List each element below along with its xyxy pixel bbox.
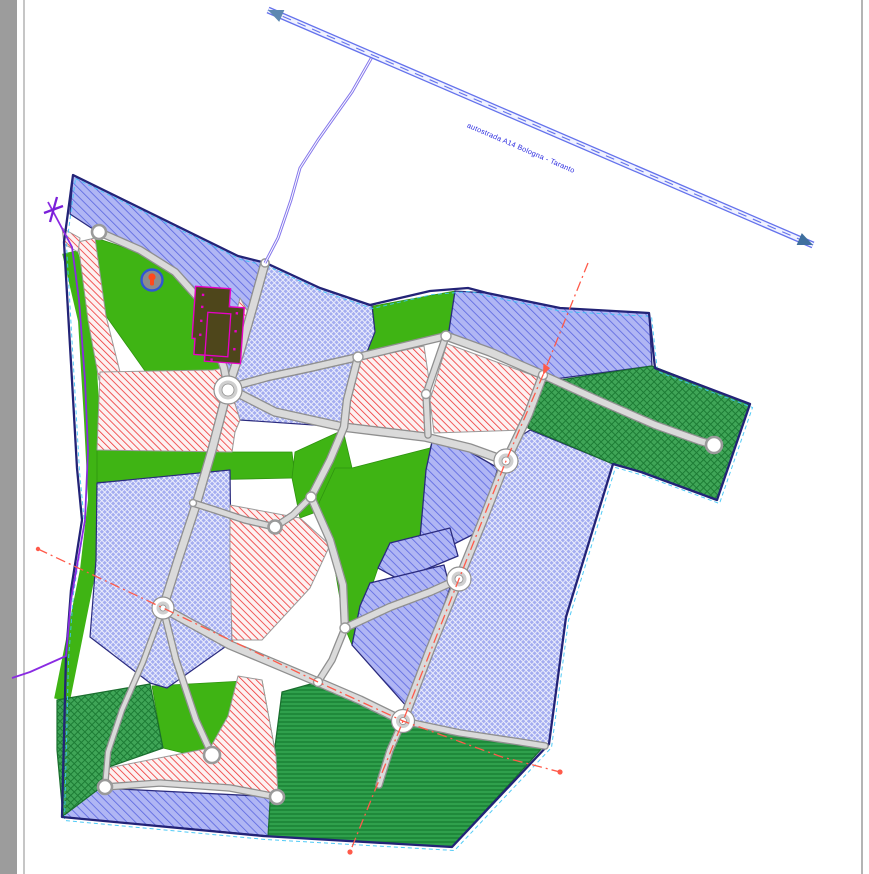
site-plan-map: autostrada A14 Bologna - Taranto (0, 0, 869, 874)
building-dot-5 (236, 312, 239, 315)
node-o (340, 623, 350, 633)
building-dot-4 (210, 358, 213, 361)
culdesac-sw (98, 780, 112, 794)
landmark-marker-tail (150, 277, 154, 286)
culdesac-k (269, 521, 282, 534)
building-dot-1 (201, 306, 204, 309)
cad-viewport: autostrada A14 Bologna - Taranto (0, 0, 869, 874)
roundabout-b-island (222, 384, 234, 396)
section-line-ns-end-dot (347, 849, 352, 854)
roundabout-l-island (160, 605, 166, 611)
section-line-wse-start-dot (36, 547, 40, 551)
residential-south-strip (63, 788, 278, 836)
building-dot-7 (233, 348, 236, 351)
building-dot-2 (200, 320, 203, 323)
node-j (422, 390, 431, 399)
culdesac-nw (92, 225, 106, 239)
culdesac-east (706, 437, 722, 453)
culdesac-p (270, 790, 284, 804)
highway-a14 (265, 4, 816, 263)
highway-label: autostrada A14 Bologna - Taranto (466, 121, 577, 175)
building-dot-0 (202, 294, 205, 297)
building-dot-3 (199, 334, 202, 337)
building-dot-6 (234, 330, 237, 333)
node-c (353, 352, 363, 362)
node-x2 (190, 500, 197, 507)
road-o-south (318, 628, 345, 682)
highway-access-ramp (265, 57, 372, 263)
node-d (441, 331, 451, 341)
block-net-mid-west (90, 470, 232, 688)
node-v (306, 492, 316, 502)
culdesac-m (204, 747, 220, 763)
section-line-wse-end-dot (557, 769, 562, 774)
